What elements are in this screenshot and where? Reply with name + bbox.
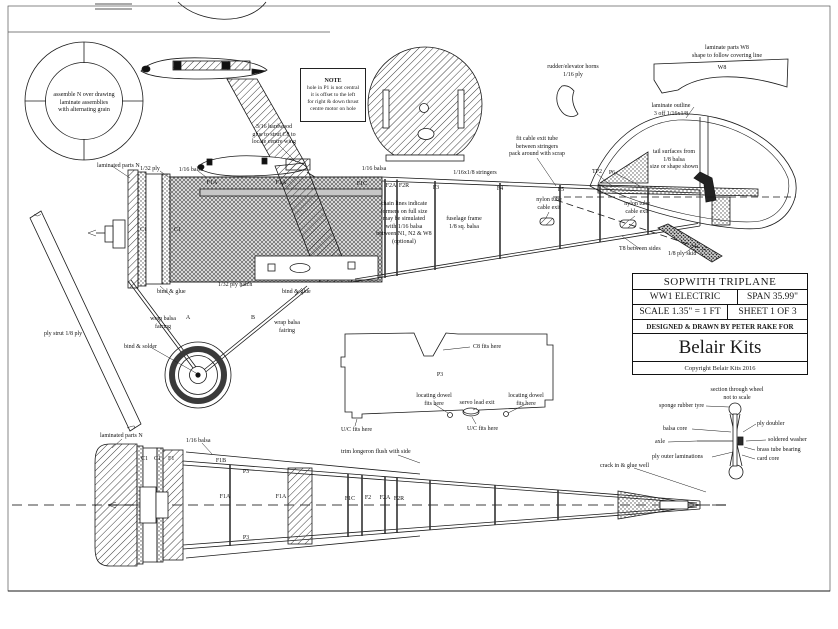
plan-scale: SCALE 1.35" = 1 FT <box>633 305 728 319</box>
rudder-horns-note: rudder/elevator horns 1/16 ply <box>547 64 598 79</box>
bind-glue-a: bind & glue <box>157 289 186 297</box>
f3-side: F3 <box>433 185 439 193</box>
fuselage-frame-note: fuselage frame 1/8 sq. balsa <box>446 216 481 231</box>
soldered-washer-label: soldered washer <box>768 437 807 445</box>
plan-sheet: NOTE hole in P1 is not central it is off… <box>0 0 838 629</box>
f1a-plan-a: F1A <box>220 494 231 502</box>
f1c-plan: F1C <box>345 496 355 504</box>
balsa-116-side-a: 1/16 balsa <box>179 167 204 175</box>
w8-note: laminate parts W8 shape to follow coveri… <box>692 45 762 60</box>
plan-span: SPAN 35.99" <box>738 290 807 304</box>
wrap-balsa-b: wrap balsa fairing <box>274 320 300 335</box>
plan-type: WW1 ELECTRIC <box>633 290 738 304</box>
f1-plan: F1 <box>168 456 174 464</box>
laminated-parts-n-side: laminated parts N <box>97 163 140 171</box>
balsa-core-label: balsa core <box>663 426 687 434</box>
copyright-notice: Copyright Belair Kits 2016 <box>633 362 807 374</box>
ply-hatch-note: 1/32 ply hatch <box>218 282 252 290</box>
tail-surfaces-note: tail surfaces from 1/8 balsa size or sha… <box>650 149 698 172</box>
fit-cable-note: fit cable exit tube between stringers pa… <box>509 136 565 159</box>
trim-longeron-note: trim longeron flush with side <box>341 449 411 457</box>
p3-plan-top: P3 <box>243 469 249 477</box>
c1-plan-a: C1 <box>141 456 148 464</box>
p6-side: P6 <box>609 170 615 178</box>
axle-label: axle <box>655 439 665 447</box>
note-box: NOTE hole in P1 is not central it is off… <box>300 68 366 122</box>
c1-plan-b: C1 <box>154 456 161 464</box>
wrap-balsa-a: wrap balsa fairing <box>150 316 176 331</box>
p3-plan-bottom: P3 <box>243 535 249 543</box>
f4-side: F4 <box>497 186 503 194</box>
stringers-label: 1/16x1/8 stringers <box>453 170 497 178</box>
note-box-title: NOTE <box>301 77 365 85</box>
wheel-section-note: section through wheel not to scale <box>711 387 764 402</box>
laminated-parts-n-plan: laminated parts N <box>100 433 143 441</box>
locating-dowel-a: locating dowel fits here <box>416 393 452 408</box>
strut-a-label: A <box>186 315 190 323</box>
ply-doubler-label: ply doubler <box>757 421 785 429</box>
ring-assembly-note: assemble N over drawing laminate assembl… <box>53 92 114 115</box>
f1a-plan-b: F1A <box>276 494 287 502</box>
nylon-tube-exit-b: nylon tube cable exit <box>624 201 650 216</box>
brass-tube-label: brass tube bearing <box>757 447 801 455</box>
balsa-116-side-b: 1/16 balsa <box>362 166 387 174</box>
c1-side-a: C1 <box>140 227 147 235</box>
title-block: SOPWITH TRIPLANE WW1 ELECTRIC SPAN 35.99… <box>632 273 808 375</box>
f2a-plan: F2A <box>380 495 391 503</box>
bind-solder-note: bind & solder <box>124 344 157 352</box>
w8-label: W8 <box>718 65 727 73</box>
f2-plan: F2 <box>365 495 371 503</box>
note-box-body: hole in P1 is not central it is offset t… <box>301 85 365 114</box>
t8-note: T8 between sides <box>619 246 661 254</box>
servo-lead-note: servo lead exit <box>460 400 495 408</box>
f1a-side-b: F1A <box>276 180 287 188</box>
ply-132-label: 1/32 ply <box>140 166 160 174</box>
locating-dowel-b: locating dowel fits here <box>508 393 544 408</box>
c8-fits-note: C8 fits here <box>473 344 501 352</box>
bind-glue-b: bind & glue <box>282 289 311 297</box>
strut-b-label: B <box>251 315 255 323</box>
plan-sheet-number: SHEET 1 OF 3 <box>728 305 807 319</box>
p3-template-label: P3 <box>437 372 443 380</box>
f1a-side-a: F1A <box>207 180 218 188</box>
skid-note: 1/8 ply skid <box>668 251 696 259</box>
balsa-116-plan: 1/16 balsa <box>186 438 211 446</box>
laminate-outline-note: laminate outline 3 off 1/16x1/8 <box>652 103 691 118</box>
sponge-tyre-label: sponge rubber tyre <box>659 403 704 411</box>
uc-fits-b: U/C fits here <box>467 426 498 434</box>
tp2-side: TP2 <box>592 169 602 177</box>
designer-credit: DESIGNED & DRAWN BY PETER RAKE FOR <box>633 320 807 334</box>
plan-title: SOPWITH TRIPLANE <box>633 274 807 290</box>
nylon-tube-exit-a: nylon tube cable exit <box>536 197 562 212</box>
ply-outer-label: ply outer laminations <box>652 454 703 462</box>
ply-strut-label: ply strut 1/8 ply <box>44 331 82 339</box>
f2r-plan: F2R <box>394 496 404 504</box>
f2a-side: F2A <box>386 183 397 191</box>
crack-glue-note: crack in & glue well <box>600 463 649 471</box>
uc-fits-a: U/C fits here <box>341 427 372 435</box>
brand-name: Belair Kits <box>633 334 807 362</box>
hardwood-note: 3/16 hardwood glue to strut C8 to locate… <box>252 124 296 147</box>
f2r-side: F2R <box>399 183 409 191</box>
f5-side: F5 <box>558 187 564 195</box>
card-core-label: card core <box>757 456 779 464</box>
c1-side-b: C1 <box>174 227 181 235</box>
f1b-plan: F1B <box>216 458 226 466</box>
f1c-side: F1C <box>357 181 367 189</box>
chain-lines-note: chain lines indicate formers on full siz… <box>376 201 431 246</box>
